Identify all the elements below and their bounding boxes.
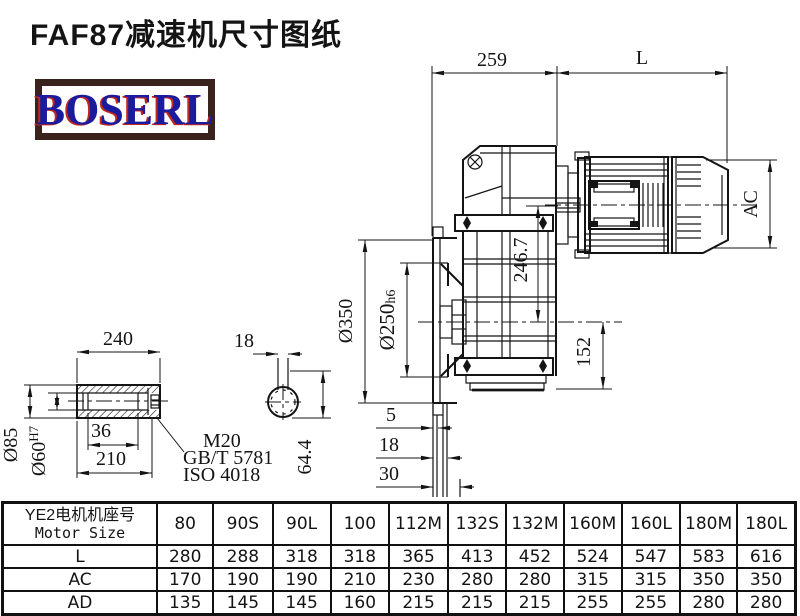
- table-cell: 255: [564, 591, 622, 615]
- row-label: AC: [3, 568, 158, 591]
- dim-motor-diameter: AC: [740, 190, 762, 218]
- table-cell: 280: [737, 591, 795, 615]
- table-cell: 524: [564, 545, 622, 568]
- dim-plate-step1: 5: [386, 404, 396, 426]
- dim-key-length: 36: [91, 420, 111, 442]
- dim-plate-step3: 30: [379, 463, 399, 485]
- table-cell: 145: [273, 591, 331, 615]
- table-cell: 145: [213, 591, 272, 615]
- col-header: 132S: [448, 503, 506, 546]
- bolt-mark-icon: [539, 359, 547, 373]
- col-header: 132M: [506, 503, 563, 546]
- table-cell: 413: [448, 545, 506, 568]
- table-row-AD: AD 135 145 145 160 215 215 215 255 255 2…: [3, 591, 796, 615]
- lifting-eye-icon: [468, 155, 482, 169]
- col-header: 112M: [389, 503, 448, 546]
- table-cell: 350: [680, 568, 737, 591]
- dim-bore: Ø60H7: [26, 425, 50, 476]
- table-cell: 230: [389, 568, 448, 591]
- motor-size-table: YE2电机机座号 Motor Size 80 90S 90L 100 112M …: [1, 501, 797, 616]
- col-header: 180L: [737, 503, 795, 546]
- dim-key-width: 18: [234, 330, 254, 352]
- col-header: 100: [331, 503, 389, 546]
- table-cell: 215: [389, 591, 448, 615]
- dim-key-depth: 64.4: [294, 440, 316, 475]
- output-flange-outline: [433, 227, 466, 497]
- table-header-motor-size: YE2电机机座号 Motor Size: [3, 503, 158, 546]
- table-cell: 318: [273, 545, 331, 568]
- table-cell: 365: [389, 545, 448, 568]
- dim-motor-length: L: [636, 47, 648, 69]
- table-cell: 280: [157, 545, 213, 568]
- col-header: 160M: [564, 503, 622, 546]
- table-cell: 350: [737, 568, 795, 591]
- col-header: 160L: [622, 503, 680, 546]
- table-cell: 255: [622, 591, 680, 615]
- dim-flange-od: Ø350: [335, 299, 357, 343]
- dim-spigot-tolerance: h6: [384, 290, 399, 304]
- col-header: 90L: [273, 503, 331, 546]
- table-cell: 280: [506, 568, 563, 591]
- dim-base-height: 152: [573, 337, 595, 367]
- gearbox-outline: [455, 146, 556, 390]
- bolt-mark-icon: [463, 359, 471, 373]
- table-cell: 160: [331, 591, 389, 615]
- table-cell: 190: [273, 568, 331, 591]
- dim-axis-distance: 246.7: [510, 238, 532, 283]
- table-row-L: L 280 288 318 318 365 413 452 524 547 58…: [3, 545, 796, 568]
- table-cell: 315: [622, 568, 680, 591]
- col-header: 80: [157, 503, 213, 546]
- table-cell: 135: [157, 591, 213, 615]
- table-cell: 280: [448, 568, 506, 591]
- table-cell: 190: [213, 568, 272, 591]
- bolt-mark-icon: [463, 216, 471, 230]
- table-cell: 280: [680, 591, 737, 615]
- dim-bore-tolerance: H7: [26, 425, 41, 441]
- table-cell: 547: [622, 545, 680, 568]
- table-cell: 315: [564, 568, 622, 591]
- header-cn: YE2电机机座号: [4, 507, 156, 525]
- col-header: 180M: [680, 503, 737, 546]
- hollow-shaft-detail-view: 240 Ø85 Ø60H7 36 210 M20 GB/T 5781 I: [0, 328, 273, 486]
- dimension-drawing: 259 L AC Ø350 Ø250h6 246.7 152 5 18 30: [0, 0, 800, 500]
- col-header: 90S: [213, 503, 272, 546]
- table-cell: 452: [506, 545, 563, 568]
- table-cell: 288: [213, 545, 272, 568]
- dim-gearbox-length: 259: [477, 49, 507, 71]
- bolt-mark-icon: [539, 216, 547, 230]
- dim-spigot: Ø250h6: [375, 290, 399, 351]
- table-cell: 210: [331, 568, 389, 591]
- table-cell: 318: [331, 545, 389, 568]
- label-standard-iso: ISO 4018: [183, 464, 260, 486]
- row-label: AD: [3, 591, 158, 615]
- table-cell: 170: [157, 568, 213, 591]
- dim-shaft-od: Ø85: [0, 428, 22, 462]
- table-cell: 583: [680, 545, 737, 568]
- dim-bore-value: Ø60: [28, 442, 50, 476]
- table-cell: 616: [737, 545, 795, 568]
- table-cell: 215: [506, 591, 563, 615]
- dim-plate-step2: 18: [379, 434, 399, 456]
- row-label: L: [3, 545, 158, 568]
- table-cell: 215: [448, 591, 506, 615]
- table-row-AC: AC 170 190 190 210 230 280 280 315 315 3…: [3, 568, 796, 591]
- dim-bore-depth: 210: [96, 448, 126, 470]
- dim-spigot-value: Ø250: [375, 304, 399, 351]
- dim-shaft-length: 240: [103, 328, 133, 350]
- header-en: Motor Size: [4, 525, 156, 542]
